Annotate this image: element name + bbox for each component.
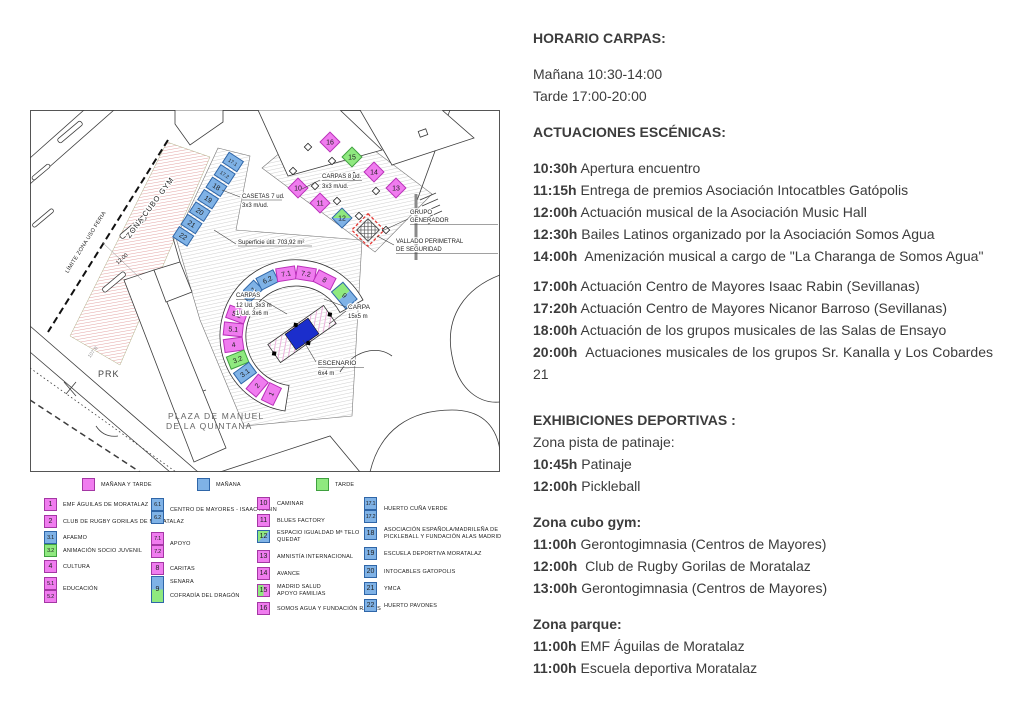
key-swatch-manana-tarde <box>82 478 95 491</box>
legend-label-9a: SENARA <box>170 579 194 586</box>
vallado-label1: VALLADO PERIMETRAL <box>396 239 464 245</box>
event-desc: Apertura encuentro <box>580 160 700 176</box>
event-time: 12:00h <box>533 558 577 574</box>
key-label-tarde: TARDE <box>335 482 354 489</box>
legend-label-8: CARITAS <box>170 566 195 573</box>
event-time: 12:00h <box>533 204 577 220</box>
legend-box-18: 18 <box>364 527 377 540</box>
event-time: 13:00h <box>533 580 577 596</box>
carpas12-label2: 12 Ud. 3x3 m <box>236 303 272 309</box>
event-desc: EMF Águilas de Moratalaz <box>580 638 744 654</box>
carpa-13: 13 <box>392 185 400 192</box>
legend-label-10: CAMINAR <box>277 501 304 508</box>
superficie-label: Superficie útil: 703,92 m² <box>238 240 304 246</box>
legend-box-20: 20 <box>364 565 377 578</box>
grupo-generador-label2: GENERADOR <box>410 218 449 224</box>
legend-box-7-1: 7.1 <box>151 532 164 545</box>
site-plan: 17.1 17.2 18 19 20 21 22 16 15 14 13 10 … <box>30 110 500 477</box>
event-time: 20:00h <box>533 344 577 360</box>
legend-box-3-1: 3.1 <box>44 531 57 544</box>
schedule-row: 18:00h Actuación de los grupos musicales… <box>533 319 993 341</box>
event-desc: Pickleball <box>581 478 640 494</box>
legend-box-1: 1 <box>44 498 57 511</box>
vallado-label2: DE SEGURIDAD <box>396 247 442 253</box>
legend-box-4: 4 <box>44 560 57 573</box>
schedule-row: 12:00h Club de Rugby Gorilas de Moratala… <box>533 555 993 577</box>
legend-box-5-2: 5.2 <box>44 590 57 603</box>
parque-title: Zona parque: <box>533 613 993 635</box>
legend-label-3-2: ANIMACIÓN SOCIO JUVENIL <box>63 548 142 555</box>
schedule-row: 11:15h Entrega de premios Asociación Int… <box>533 179 993 201</box>
legend-box-7-2: 7.2 <box>151 545 164 558</box>
event-desc: Actuación musical de la Asociación Music… <box>580 204 866 220</box>
legend-label-22: HUERTO PAVONES <box>384 603 437 610</box>
legend-label-13: AMNISTÍA INTERNACIONAL <box>277 554 353 561</box>
prk-label: PRK <box>98 369 120 379</box>
legend-box-16: 16 <box>257 602 270 615</box>
legend-box-17-2: 17.2 <box>364 510 377 523</box>
event-desc: Actuaciones musicales de los grupos Sr. … <box>533 344 993 382</box>
legend-box-12: 12 <box>257 530 270 543</box>
legend-label-15a: MADRID SALUD <box>277 584 321 591</box>
event-desc: Gerontogimnasia (Centros de Mayores) <box>581 580 827 596</box>
key-label-manana-tarde: MAÑANA Y TARDE <box>101 482 152 489</box>
grupo-generador-label1: GRUPO <box>410 210 432 216</box>
escenario-label2: 6x4 m <box>318 371 334 377</box>
legend-label-14: AVANCE <box>277 571 300 578</box>
cubo-title: Zona cubo gym: <box>533 511 993 533</box>
event-desc: Gerontogimnasia (Centros de Mayores) <box>580 536 826 552</box>
event-desc: Amenización musical a cargo de "La Chara… <box>584 248 983 264</box>
event-time: 17:20h <box>533 300 577 316</box>
carpa-11: 11 <box>316 200 323 207</box>
legend-box-10: 10 <box>257 497 270 510</box>
carpas8-label: CARPAS 8 ud. <box>322 174 362 180</box>
event-time: 10:30h <box>533 160 577 176</box>
schedule-row: 17:20h Actuación Centro de Mayores Nican… <box>533 297 993 319</box>
schedule-row: 11:00h EMF Águilas de Moratalaz <box>533 635 993 657</box>
schedule-row: 17:00h Actuación Centro de Mayores Isaac… <box>533 275 993 297</box>
legend-box-21: 21 <box>364 582 377 595</box>
schedule-row: 11:00h Escuela deportiva Moratalaz <box>533 657 993 679</box>
carpa-12: 12 <box>338 215 346 222</box>
legend-box-6-1: 6.1 <box>151 498 164 511</box>
deportivas-subtitle: Zona pista de patinaje: <box>533 431 993 453</box>
carpa-15: 15 <box>348 154 356 161</box>
arc-box-5-1: 5.1 <box>228 326 239 334</box>
schedule-row: 12:30h Bailes Latinos organizado por la … <box>533 223 993 245</box>
legend-label-9b: COFRADÍA DEL DRAGÓN <box>170 593 240 600</box>
schedule-row: 13:00h Gerontogimnasia (Centros de Mayor… <box>533 577 993 599</box>
event-desc: Entrega de premios Asociación Intocatble… <box>580 182 908 198</box>
legend-box-11: 11 <box>257 514 270 527</box>
legend-box-2: 2 <box>44 515 57 528</box>
carpa-10: 10 <box>294 185 302 192</box>
legend-label-21: YMCA <box>384 586 401 593</box>
legend-label-12a: ESPACIO IGUALDAD Mª TELO <box>277 530 359 537</box>
event-time: 11:15h <box>533 182 577 198</box>
plaza-label1: PLAZA DE MANUEL <box>168 411 264 421</box>
legend-box-3-2: 3.2 <box>44 544 57 557</box>
legend-box-19: 19 <box>364 547 377 560</box>
legend-label-5: EDUCACIÓN <box>63 586 98 593</box>
legend-box-17-1: 17.1 <box>364 497 377 510</box>
key-swatch-manana <box>197 478 210 491</box>
event-time: 11:00h <box>533 660 577 676</box>
event-desc: Club de Rugby Gorilas de Moratalaz <box>585 558 811 574</box>
legend-box-5-1: 5.1 <box>44 577 57 590</box>
horario-title: HORARIO CARPAS: <box>533 27 993 49</box>
legend-box-9: 9 <box>151 576 164 603</box>
event-time: 17:00h <box>533 278 577 294</box>
escenario-label1: ESCENARIO <box>318 360 356 367</box>
legend-box-22: 22 <box>364 599 377 612</box>
schedule-row: 11:00h Gerontogimnasia (Centros de Mayor… <box>533 533 993 555</box>
schedule-row: 10:45h Patinaje <box>533 453 993 475</box>
event-desc: Patinaje <box>581 456 632 472</box>
carpa-label1: CARPA <box>348 304 371 311</box>
legend-label-18a: ASOCIACIÓN ESPAÑOLA/MADRILEÑA DE <box>384 527 498 534</box>
event-time: 14:00h <box>533 248 577 264</box>
schedule-panel: HORARIO CARPAS: Mañana 10:30-14:00 Tarde… <box>533 27 993 679</box>
legend-label-15b: APOYO FAMILIAS <box>277 591 326 598</box>
legend-box-14: 14 <box>257 567 270 580</box>
legend-label-3-1: AFAEMO <box>63 535 87 542</box>
event-desc: Escuela deportiva Moratalaz <box>580 660 757 676</box>
event-desc: Bailes Latinos organizado por la Asociac… <box>581 226 934 242</box>
legend-label-19: ESCUELA DEPORTIVA MORATALAZ <box>384 551 482 558</box>
legend-box-13: 13 <box>257 550 270 563</box>
deportivas-title: EXHIBICIONES DEPORTIVAS : <box>533 409 993 431</box>
schedule-row: 14:00h Amenización musical a cargo de "L… <box>533 245 993 267</box>
legend-label-18b: PICKLEBALL Y FUNDACIÓN ALAS MADRID <box>384 534 501 541</box>
carpa-label2: 15x5 m <box>348 314 368 320</box>
legend-label-11: BLUES FACTORY <box>277 518 325 525</box>
legend-box-8: 8 <box>151 562 164 575</box>
schedule-row: 10:30h Apertura encuentro <box>533 157 993 179</box>
legend-label-4: CULTURA <box>63 564 90 571</box>
event-desc: Actuación Centro de Mayores Isaac Rabin … <box>580 278 919 294</box>
key-swatch-tarde <box>316 478 329 491</box>
legend-label-1: EMF ÁGUILAS DE MORATALAZ <box>63 502 148 509</box>
key-label-manana: MAÑANA <box>216 482 241 489</box>
event-desc: Actuación de los grupos musicales de las… <box>580 322 946 338</box>
site-plan-svg: 17.1 17.2 18 19 20 21 22 16 15 14 13 10 … <box>30 110 500 472</box>
event-time: 11:00h <box>533 638 577 654</box>
event-time: 10:45h <box>533 456 577 472</box>
schedule-row: 12:00h Pickleball <box>533 475 993 497</box>
event-time: 12:00h <box>533 478 577 494</box>
legend-box-6-2: 6.2 <box>151 511 164 524</box>
event-time: 18:00h <box>533 322 577 338</box>
casetas-label: CASETAS 7 ud. <box>242 194 285 200</box>
horario-manana: Mañana 10:30-14:00 <box>533 63 993 85</box>
legend-label-2: CLUB DE RUGBY GORILAS DE MORATALAZ <box>63 519 184 526</box>
schedule-row: 20:00h Actuaciones musicales de los grup… <box>533 341 993 385</box>
carpa-14: 14 <box>370 169 378 176</box>
carpas8-label2: 3x3 m/ud. <box>322 184 349 190</box>
event-time: 11:00h <box>533 536 577 552</box>
event-time: 12:30h <box>533 226 577 242</box>
casetas-label2: 3x3 m/ud. <box>242 203 269 209</box>
carpas12-label3: 1 Ud. 3x6 m <box>236 311 268 317</box>
legend-label-7: APOYO <box>170 541 191 548</box>
event-desc: Actuación Centro de Mayores Nicanor Barr… <box>580 300 947 316</box>
carpas12-label1: CARPAS <box>236 293 260 299</box>
plaza-label2: DE LA QUINTANA <box>166 421 253 431</box>
legend-label-17: HUERTO CUÑA VERDE <box>384 506 448 513</box>
carpa-16: 16 <box>326 139 334 146</box>
legend-label-20: INTOCABLES GATOPOLIS <box>384 569 456 576</box>
horario-tarde: Tarde 17:00-20:00 <box>533 85 993 107</box>
schedule-row: 12:00h Actuación musical de la Asociació… <box>533 201 993 223</box>
legend-box-15: 15 <box>257 584 270 597</box>
legend-label-12b: QUEDAT <box>277 537 301 544</box>
escenicas-title: ACTUACIONES ESCÉNICAS: <box>533 121 993 143</box>
